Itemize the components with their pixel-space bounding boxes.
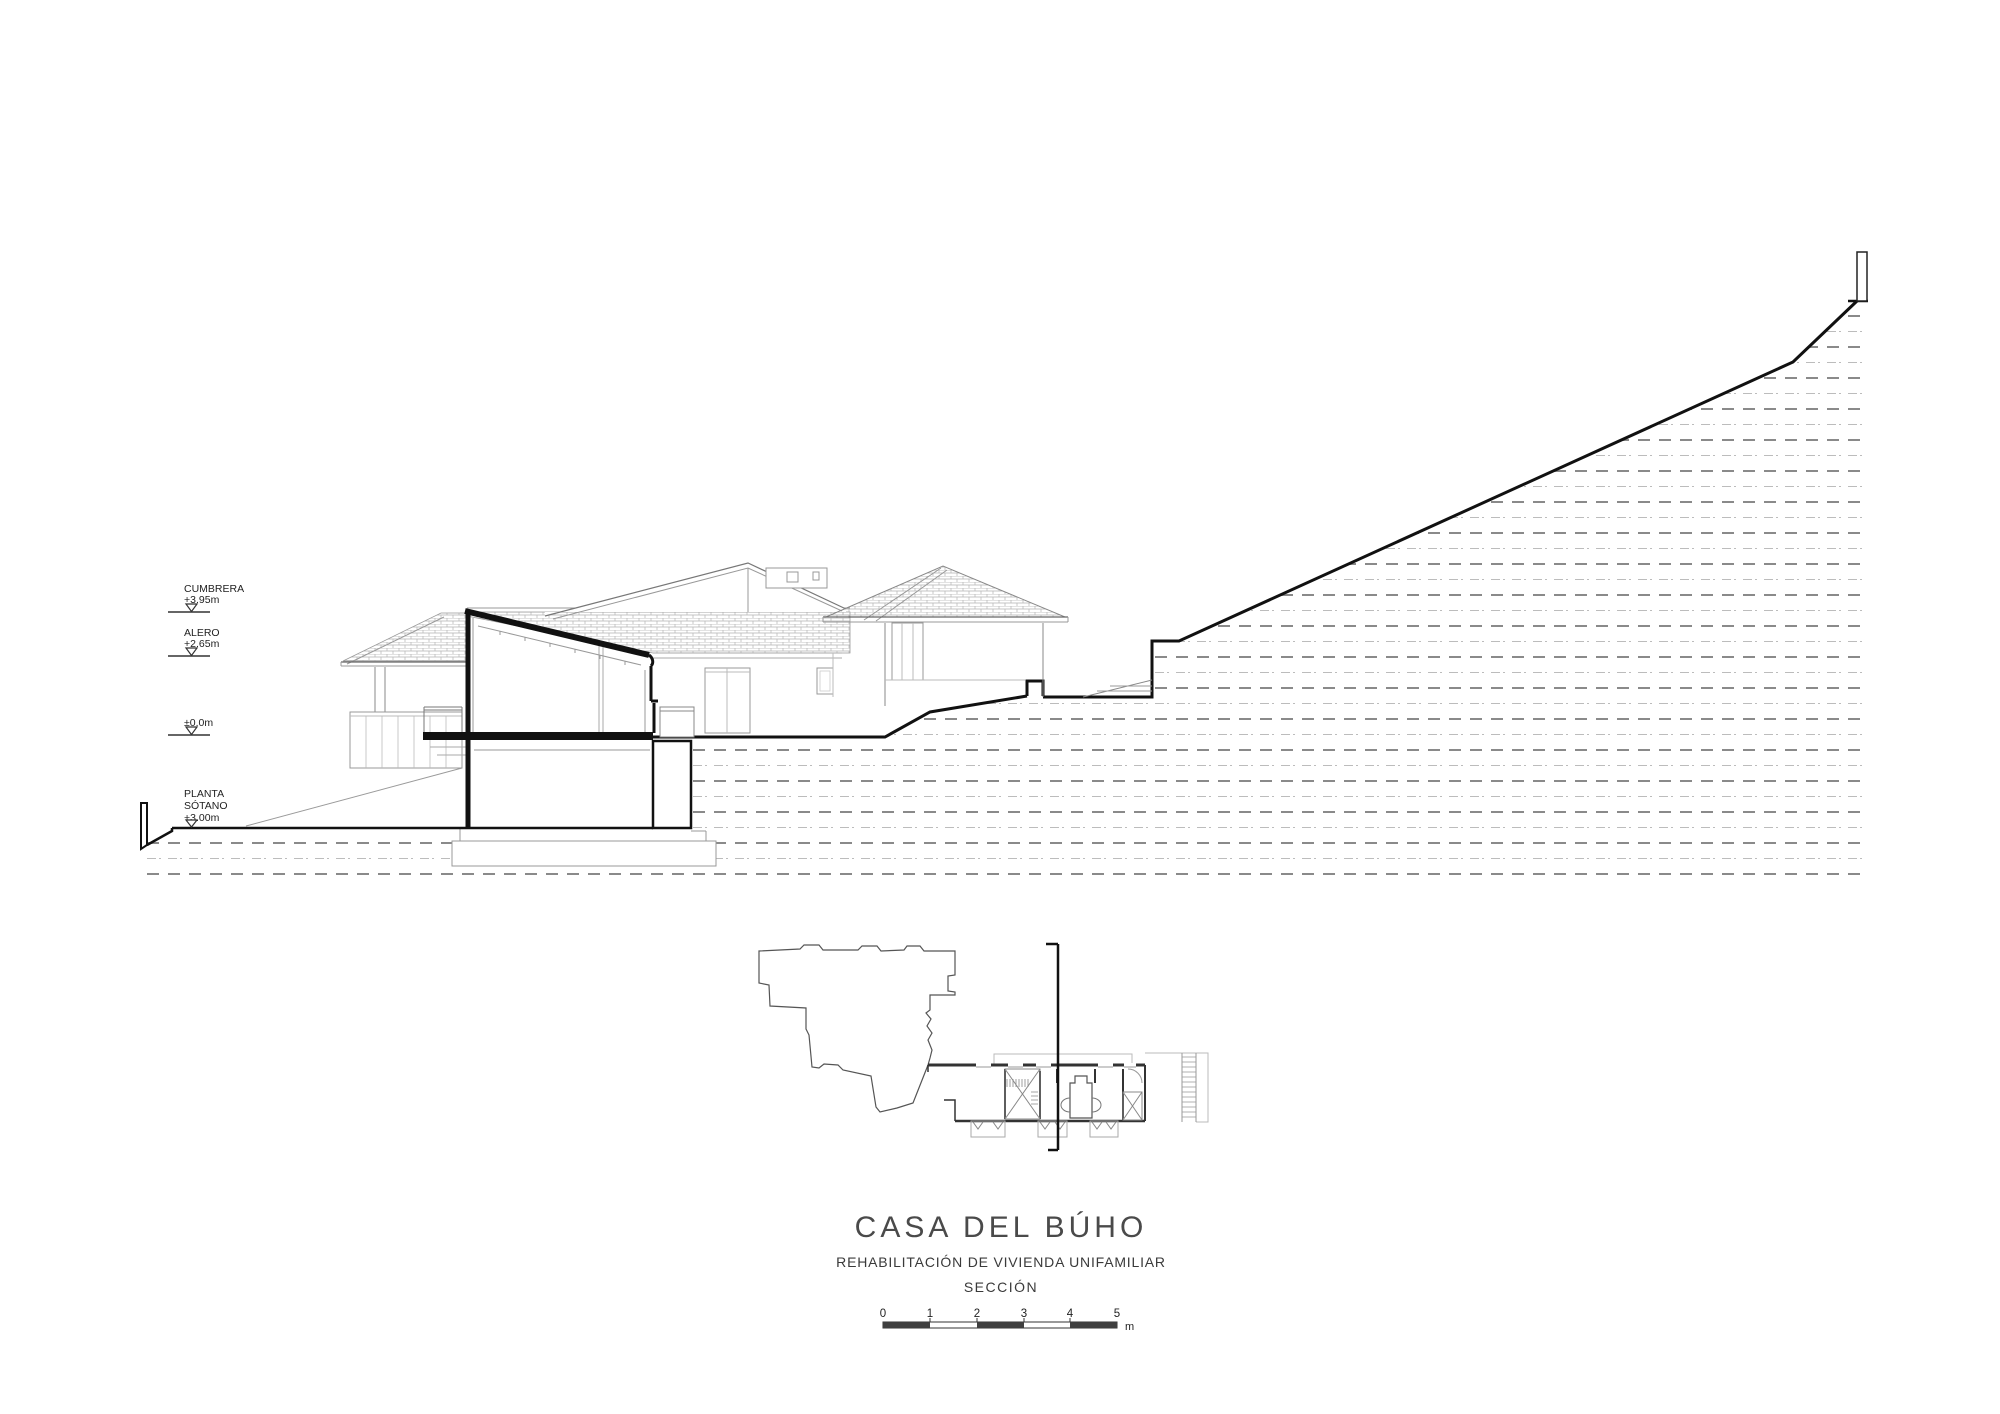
section-drawing: CUMBRERA +3.95m ALERO +2.65m ±0.0m PLANT… [141,252,1868,878]
drawing-canvas: CUMBRERA +3.95m ALERO +2.65m ±0.0m PLANT… [0,0,2000,1414]
scale-tick-label: 0 [880,1308,886,1320]
porch-bays [971,1121,1118,1137]
title-block: CASA DEL BÚHO REHABILITACIÓN DE VIVIENDA… [836,1211,1166,1333]
scale-tick-label: 5 [1114,1308,1120,1320]
small-window [817,668,833,694]
level-marker-zero: ±0.0m [168,717,213,735]
middle-roof-band [467,608,850,658]
external-stair [1182,1053,1196,1122]
level-marker-alero: ALERO +2.65m [168,627,220,656]
level-triangle-icon [186,604,197,612]
door-swing [1128,1069,1142,1083]
floor-slab [423,732,653,740]
right-building [823,566,1068,706]
project-subtitle: REHABILITACIÓN DE VIVIENDA UNIFAMILIAR [836,1254,1166,1270]
level-marker-cumbrera: CUMBRERA +3.95m [168,583,244,612]
scale-bar: 0 1 2 3 4 5 m [880,1308,1134,1333]
level-triangle-icon [186,727,197,735]
basement-right-wall [653,741,691,828]
middle-facade [660,653,833,737]
stair-cross-right [1123,1092,1142,1120]
level-label: PLANTA [184,788,224,800]
hill-steps [1083,680,1152,697]
plan-wing [928,1063,1145,1137]
drawing-type-label: SECCIÓN [964,1279,1038,1295]
porch-roof [343,613,467,661]
level-triangle-icon [186,648,197,656]
retaining-wall [141,803,147,849]
section-cut-line [1046,944,1058,1150]
architectural-drawing-sheet: CUMBRERA +3.95m ALERO +2.65m ±0.0m PLANT… [0,0,2000,1414]
front-slope-line [246,768,462,826]
scale-unit-label: m [1125,1321,1134,1333]
fence-post [1857,252,1867,301]
level-label: SÓTANO [184,799,228,812]
level-marker-sotano: PLANTA SÓTANO +3.00m [184,788,228,827]
cut-eave-gutter [649,655,658,733]
right-hip-roof [826,566,1065,617]
level-markers: CUMBRERA +3.95m ALERO +2.65m ±0.0m PLANT… [168,583,244,827]
left-porch [341,613,469,768]
existing-footprint-outline [759,945,955,1112]
project-title: CASA DEL BÚHO [855,1211,1148,1244]
chimney [766,568,827,588]
floor-plan [759,944,1208,1150]
glazed-door [892,623,923,680]
earth-hatch [141,290,1868,878]
stair-cross [1005,1069,1040,1119]
parapet-step [1027,681,1043,696]
porch-post [375,667,385,712]
